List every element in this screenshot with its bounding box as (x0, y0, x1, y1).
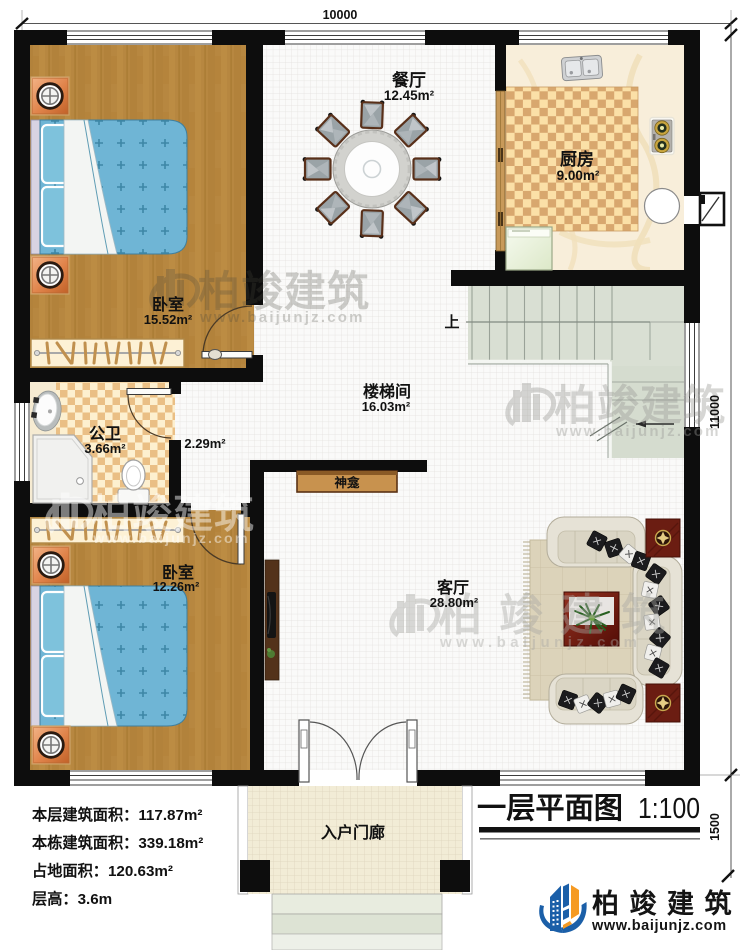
svg-text:9.00m²: 9.00m² (557, 168, 600, 183)
svg-text:神龛: 神龛 (334, 475, 360, 490)
svg-text:12.26m²: 12.26m² (153, 580, 200, 594)
svg-text:10000: 10000 (323, 8, 358, 22)
svg-text:一层平面图: 一层平面图 (477, 792, 623, 825)
svg-text:28.80m²: 28.80m² (430, 595, 479, 610)
svg-text:www.baijunjz.com: www.baijunjz.com (439, 634, 641, 651)
svg-text:15.52m²: 15.52m² (144, 312, 193, 327)
svg-text:入户门廊: 入户门廊 (321, 823, 385, 842)
svg-text:1500: 1500 (708, 813, 722, 841)
svg-text:占地面积：120.63m²: 占地面积：120.63m² (32, 862, 173, 880)
svg-text:2.29m²: 2.29m² (184, 436, 226, 451)
svg-text:16.03m²: 16.03m² (362, 399, 411, 414)
svg-text:层高：3.6m: 层高：3.6m (32, 890, 112, 908)
svg-text:厨房: 厨房 (560, 149, 594, 169)
svg-text:www.baijunjz.com: www.baijunjz.com (591, 918, 727, 934)
svg-text:11000: 11000 (708, 395, 722, 429)
svg-text:本层建筑面积：117.87m²: 本层建筑面积：117.87m² (32, 806, 203, 824)
svg-text:餐厅: 餐厅 (392, 70, 426, 90)
svg-text:柏竣建筑: 柏竣建筑 (592, 888, 742, 919)
svg-text:3.66m²: 3.66m² (84, 441, 126, 456)
svg-text:12.45m²: 12.45m² (384, 88, 435, 103)
svg-text:1:100: 1:100 (638, 793, 700, 825)
svg-text:上: 上 (444, 314, 459, 331)
svg-text:本栋建筑面积：339.18m²: 本栋建筑面积：339.18m² (32, 834, 203, 852)
